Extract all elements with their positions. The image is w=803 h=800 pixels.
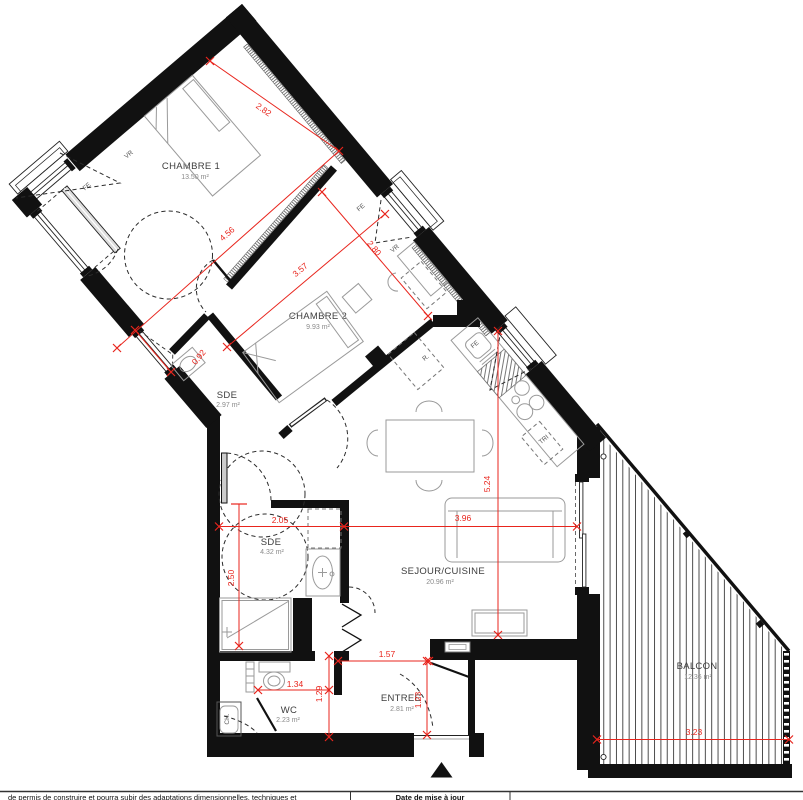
svg-text:1.57: 1.57 xyxy=(379,649,396,659)
svg-text:CH.: CH. xyxy=(224,713,231,724)
svg-text:2.50: 2.50 xyxy=(226,569,236,586)
svg-text:13.50 m²: 13.50 m² xyxy=(181,174,209,181)
svg-text:2.23 m²: 2.23 m² xyxy=(276,717,300,724)
svg-text:5.24: 5.24 xyxy=(482,475,492,492)
svg-text:9.93 m²: 9.93 m² xyxy=(306,324,330,331)
svg-text:WC: WC xyxy=(281,705,297,716)
svg-text:12.36 m²: 12.36 m² xyxy=(684,674,712,681)
svg-text:1.34: 1.34 xyxy=(287,679,304,689)
svg-text:3.23: 3.23 xyxy=(686,727,703,737)
svg-text:1.29: 1.29 xyxy=(314,685,324,702)
svg-text:4.32 m²: 4.32 m² xyxy=(260,549,284,556)
svg-text:de permis de construire et pou: de permis de construire et pourra subir … xyxy=(8,793,297,800)
svg-text:SEJOUR/CUISINE: SEJOUR/CUISINE xyxy=(401,566,485,577)
svg-text:SDE: SDE xyxy=(217,390,237,401)
svg-text:3.96: 3.96 xyxy=(455,513,472,523)
svg-text:2.05: 2.05 xyxy=(272,515,289,525)
svg-text:BALCON: BALCON xyxy=(677,661,718,672)
svg-text:20.96 m²: 20.96 m² xyxy=(426,579,454,586)
svg-text:2.81 m²: 2.81 m² xyxy=(390,706,414,713)
svg-text:Date de mise à jour: Date de mise à jour xyxy=(396,793,465,800)
svg-text:1.23: 1.23 xyxy=(413,691,423,708)
svg-text:2.97 m²: 2.97 m² xyxy=(216,402,240,409)
svg-text:SDE: SDE xyxy=(261,537,281,548)
